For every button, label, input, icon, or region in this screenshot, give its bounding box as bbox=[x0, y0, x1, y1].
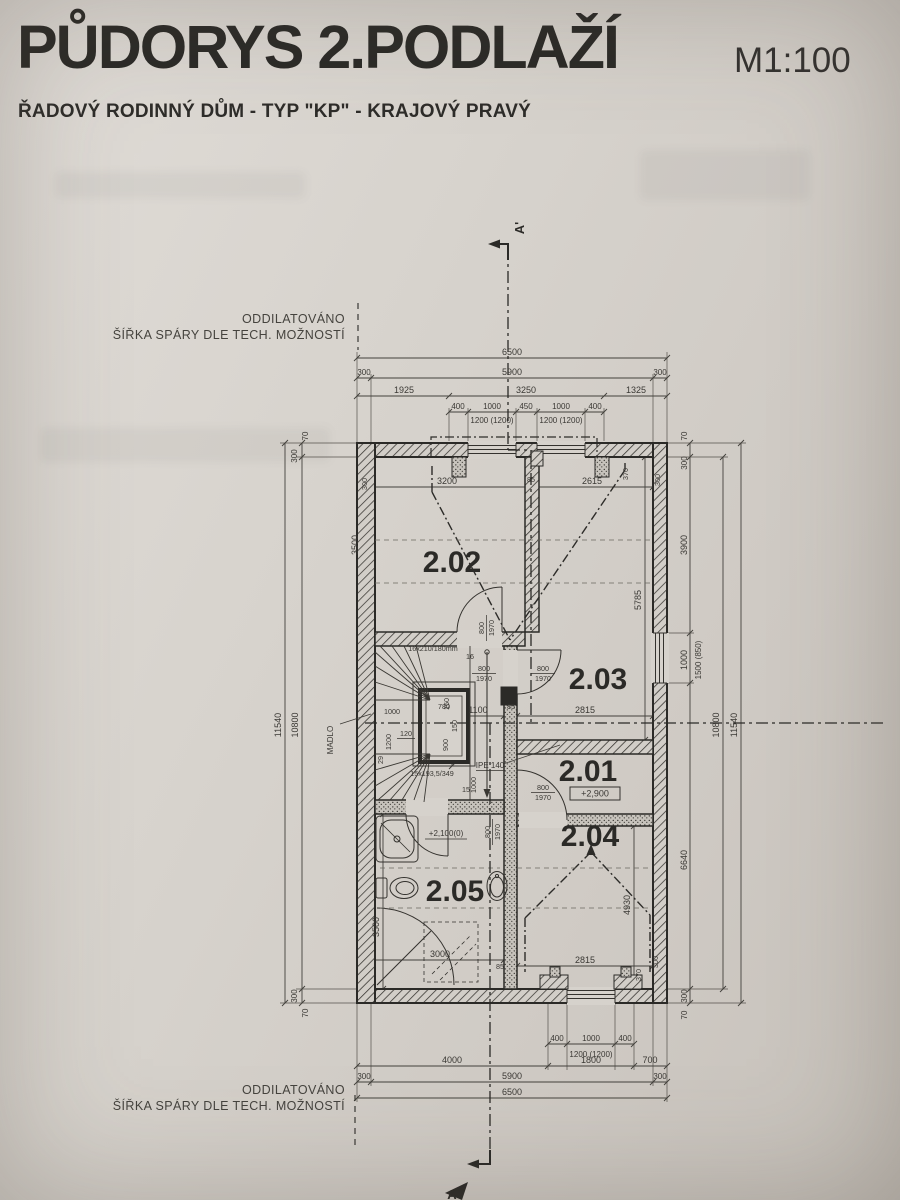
dim-label: 450 bbox=[519, 402, 533, 411]
dim-label: 6500 bbox=[502, 347, 522, 357]
svg-text:800: 800 bbox=[537, 664, 549, 673]
dim-label: 400 bbox=[550, 1034, 564, 1043]
dim-label: 3000 bbox=[430, 949, 450, 959]
section-label-top: A' bbox=[512, 222, 527, 234]
dim-label: 300 bbox=[680, 989, 689, 1003]
section-arrow-top bbox=[499, 244, 508, 260]
svg-text:1970: 1970 bbox=[487, 620, 496, 636]
svg-text:800: 800 bbox=[477, 622, 486, 634]
dim-label: 1800 bbox=[581, 1055, 601, 1065]
dim-label: 11540 bbox=[273, 713, 283, 737]
dim-label: 1000 bbox=[384, 707, 400, 716]
dim-label: 1200 (1200) bbox=[539, 416, 582, 425]
dim-label: 3500 bbox=[350, 535, 360, 555]
dim-label: 370 bbox=[621, 468, 630, 480]
dim-label: 16 bbox=[466, 652, 474, 661]
toilet-tank bbox=[376, 878, 387, 898]
dim-label: 1500 (850) bbox=[694, 640, 703, 679]
dim-label: 4930 bbox=[622, 895, 632, 915]
dim-label: 700 bbox=[642, 1055, 657, 1065]
svg-text:1970: 1970 bbox=[493, 824, 502, 840]
dim-label: 300 bbox=[651, 956, 660, 968]
room-label-203: 2.03 bbox=[569, 663, 627, 696]
stair-flight-down-label: 15x193,5/349 bbox=[410, 769, 454, 778]
dim-label: 3900 bbox=[679, 535, 689, 555]
dim-label: 5900 bbox=[502, 1071, 522, 1081]
svg-text:800: 800 bbox=[478, 664, 490, 673]
dim-label: 300 bbox=[653, 368, 667, 377]
dim-label: 300 bbox=[360, 478, 369, 490]
dim-label: 780 bbox=[438, 702, 450, 711]
door-label-204: 800 1970 bbox=[531, 783, 555, 802]
dim-label: 11540 bbox=[729, 713, 739, 737]
dim-label: 2815 bbox=[575, 705, 595, 715]
dim-label: 120 bbox=[400, 729, 412, 738]
dim-label: 300 bbox=[680, 456, 689, 470]
svg-text:1970: 1970 bbox=[535, 674, 551, 683]
dim-label: 2615 bbox=[582, 476, 602, 486]
dim-label: 300 bbox=[357, 368, 371, 377]
level-hall: +2,900 bbox=[581, 789, 609, 799]
room-label-205: 2.05 bbox=[426, 875, 484, 908]
dim-label: 10800 bbox=[711, 712, 721, 737]
dim-label: 29 bbox=[376, 756, 385, 764]
dim-label: 3500 bbox=[371, 917, 381, 937]
door-label-stair: 800 1970 bbox=[472, 664, 496, 683]
svg-text:800: 800 bbox=[537, 783, 549, 792]
dim-label: 300 bbox=[357, 1072, 371, 1081]
dim-label: 400 bbox=[618, 1034, 632, 1043]
dim-label: 70 bbox=[680, 1010, 689, 1019]
handrail-label: MADLO bbox=[326, 726, 335, 754]
section-label-bottom: A bbox=[447, 1187, 457, 1200]
level-bath: +2,100(0) bbox=[429, 829, 464, 838]
dim-label: 5785 bbox=[633, 590, 643, 610]
dim-label: 85 bbox=[496, 962, 504, 971]
door-label-203: 800 1970 bbox=[531, 664, 555, 683]
dim-label: 85 bbox=[527, 475, 535, 484]
room-label-201: 2.01 bbox=[559, 755, 617, 788]
dim-label: 400 bbox=[451, 402, 465, 411]
dim-label: 1000 bbox=[469, 777, 478, 793]
dim-label: 10800 bbox=[290, 712, 300, 737]
svg-text:1970: 1970 bbox=[535, 793, 551, 802]
wall-203-201 bbox=[517, 740, 653, 754]
dim-label: 4000 bbox=[442, 1055, 462, 1065]
dim-label: 1000 bbox=[679, 650, 689, 670]
dim-label: 1000 bbox=[552, 402, 570, 411]
dim-label: 300 bbox=[653, 474, 662, 486]
room-label-204: 2.04 bbox=[561, 820, 620, 853]
svg-text:800: 800 bbox=[483, 826, 492, 838]
dim-label: 1100 bbox=[468, 705, 487, 715]
dim-label: 85 bbox=[507, 702, 515, 711]
dim-label: 3250 bbox=[516, 385, 536, 395]
dim-label: 1200 (1200) bbox=[470, 416, 513, 425]
door-shower bbox=[377, 908, 454, 985]
dim-label: 70 bbox=[680, 431, 689, 440]
dim-label: 300 bbox=[653, 1072, 667, 1081]
dim-label: 70 bbox=[301, 1008, 310, 1017]
dim-label: 900 bbox=[441, 739, 450, 751]
floorplan-svg: A' A 2.02 2.03 2.01 2.04 2.05 +2,900 +2,… bbox=[0, 0, 900, 1200]
dim-label: 3200 bbox=[437, 476, 457, 486]
dim-label: 6500 bbox=[502, 1087, 522, 1097]
dim-label: 1000 bbox=[582, 1034, 600, 1043]
dim-label: 1000 bbox=[483, 402, 501, 411]
dim-label: 6640 bbox=[679, 850, 689, 870]
beam-label: IPE 140 bbox=[476, 761, 505, 770]
drawing-sheet: PŮDORYS 2.PODLAŽÍ M1:100 ŘADOVÝ RODINNÝ … bbox=[0, 0, 900, 1200]
dim-label: 1200 bbox=[384, 734, 393, 750]
dim-label: 1325 bbox=[626, 385, 646, 395]
section-arrow-bottom bbox=[478, 1150, 490, 1164]
dim-label: 300 bbox=[290, 989, 299, 1003]
svg-text:1970: 1970 bbox=[476, 674, 492, 683]
dim-label: 150 bbox=[450, 720, 459, 732]
dim-label: 2815 bbox=[575, 955, 595, 965]
dim-label: 400 bbox=[588, 402, 602, 411]
dim-label: 300 bbox=[290, 449, 299, 463]
dim-label: 370 bbox=[634, 969, 643, 981]
stair-flight-up-label: 16x210/180mm bbox=[408, 644, 458, 653]
dim-label: 1925 bbox=[394, 385, 414, 395]
wall-bottom bbox=[357, 989, 667, 1003]
dim-label: 5900 bbox=[502, 367, 522, 377]
room-label-202: 2.02 bbox=[423, 546, 481, 579]
door-label-bath: 800 1970 bbox=[483, 819, 502, 845]
dim-label: 70 bbox=[301, 431, 310, 440]
